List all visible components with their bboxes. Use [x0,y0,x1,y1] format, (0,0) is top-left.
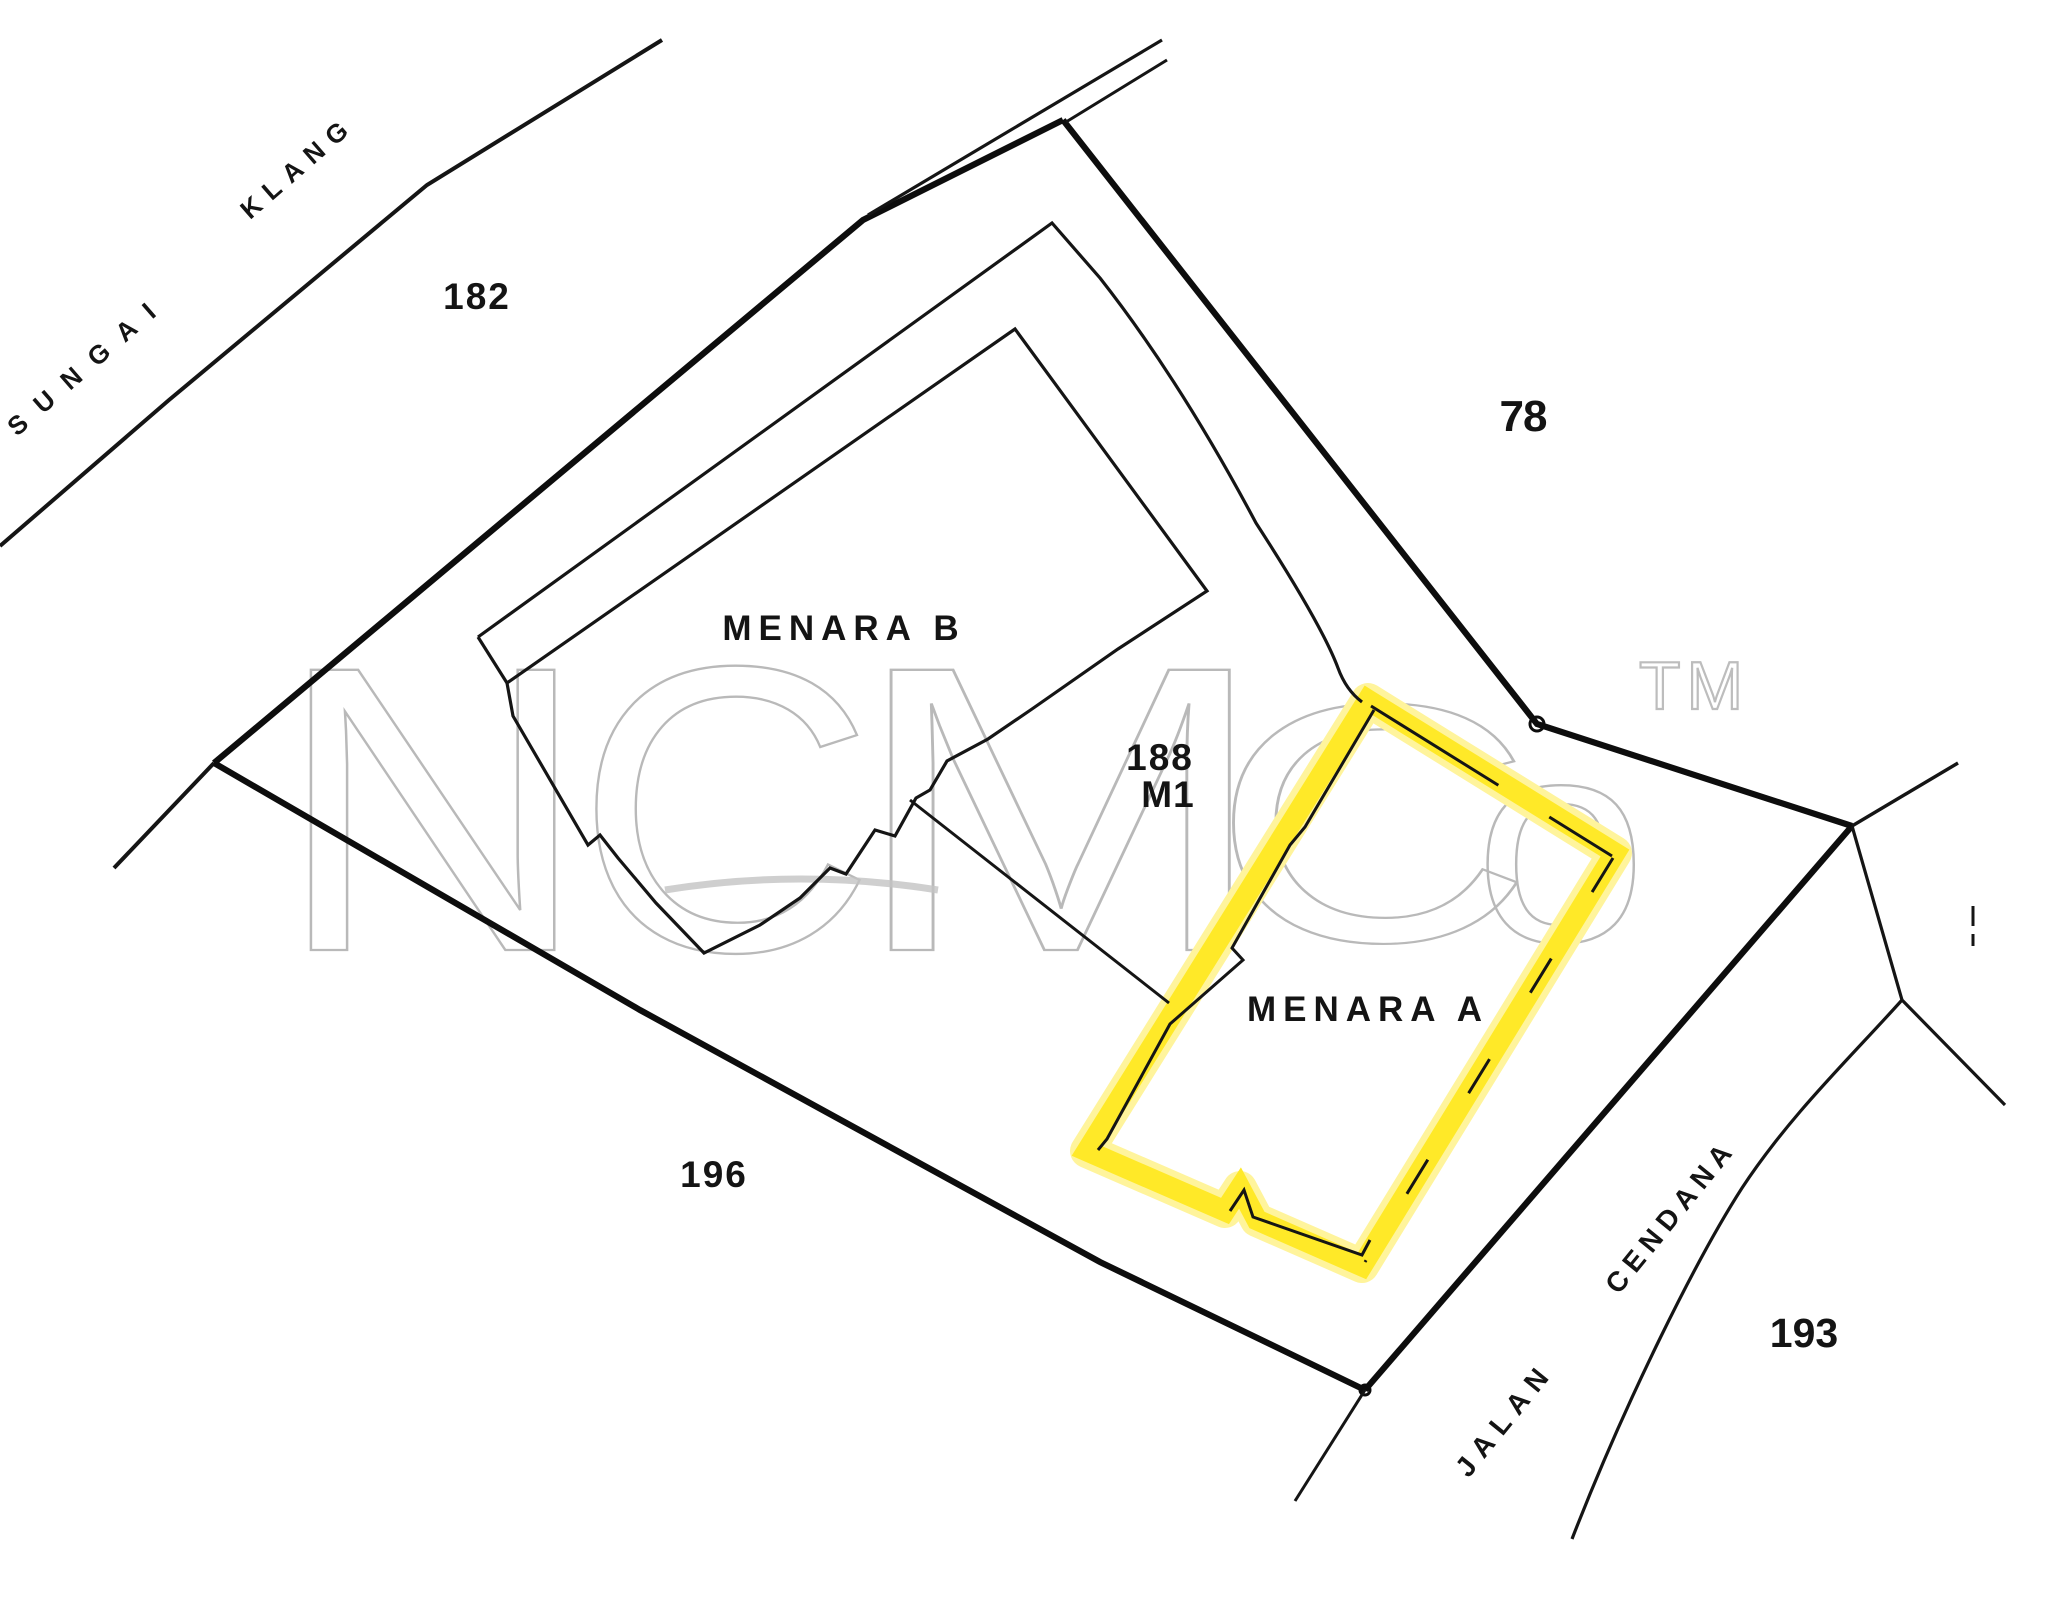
svg-text:182: 182 [443,276,511,317]
svg-text:MENARA A: MENARA A [1247,990,1489,1029]
svg-text:188: 188 [1126,737,1194,778]
svg-text:N: N [275,582,590,1037]
svg-text:TM: TM [1639,648,1749,724]
svg-text:M1: M1 [1141,774,1194,815]
svg-text:C: C [575,583,875,1037]
svg-text:78: 78 [1500,392,1547,441]
svg-text:193: 193 [1770,1310,1838,1356]
svg-text:196: 196 [680,1154,748,1195]
svg-text:MENARA B: MENARA B [722,609,965,648]
